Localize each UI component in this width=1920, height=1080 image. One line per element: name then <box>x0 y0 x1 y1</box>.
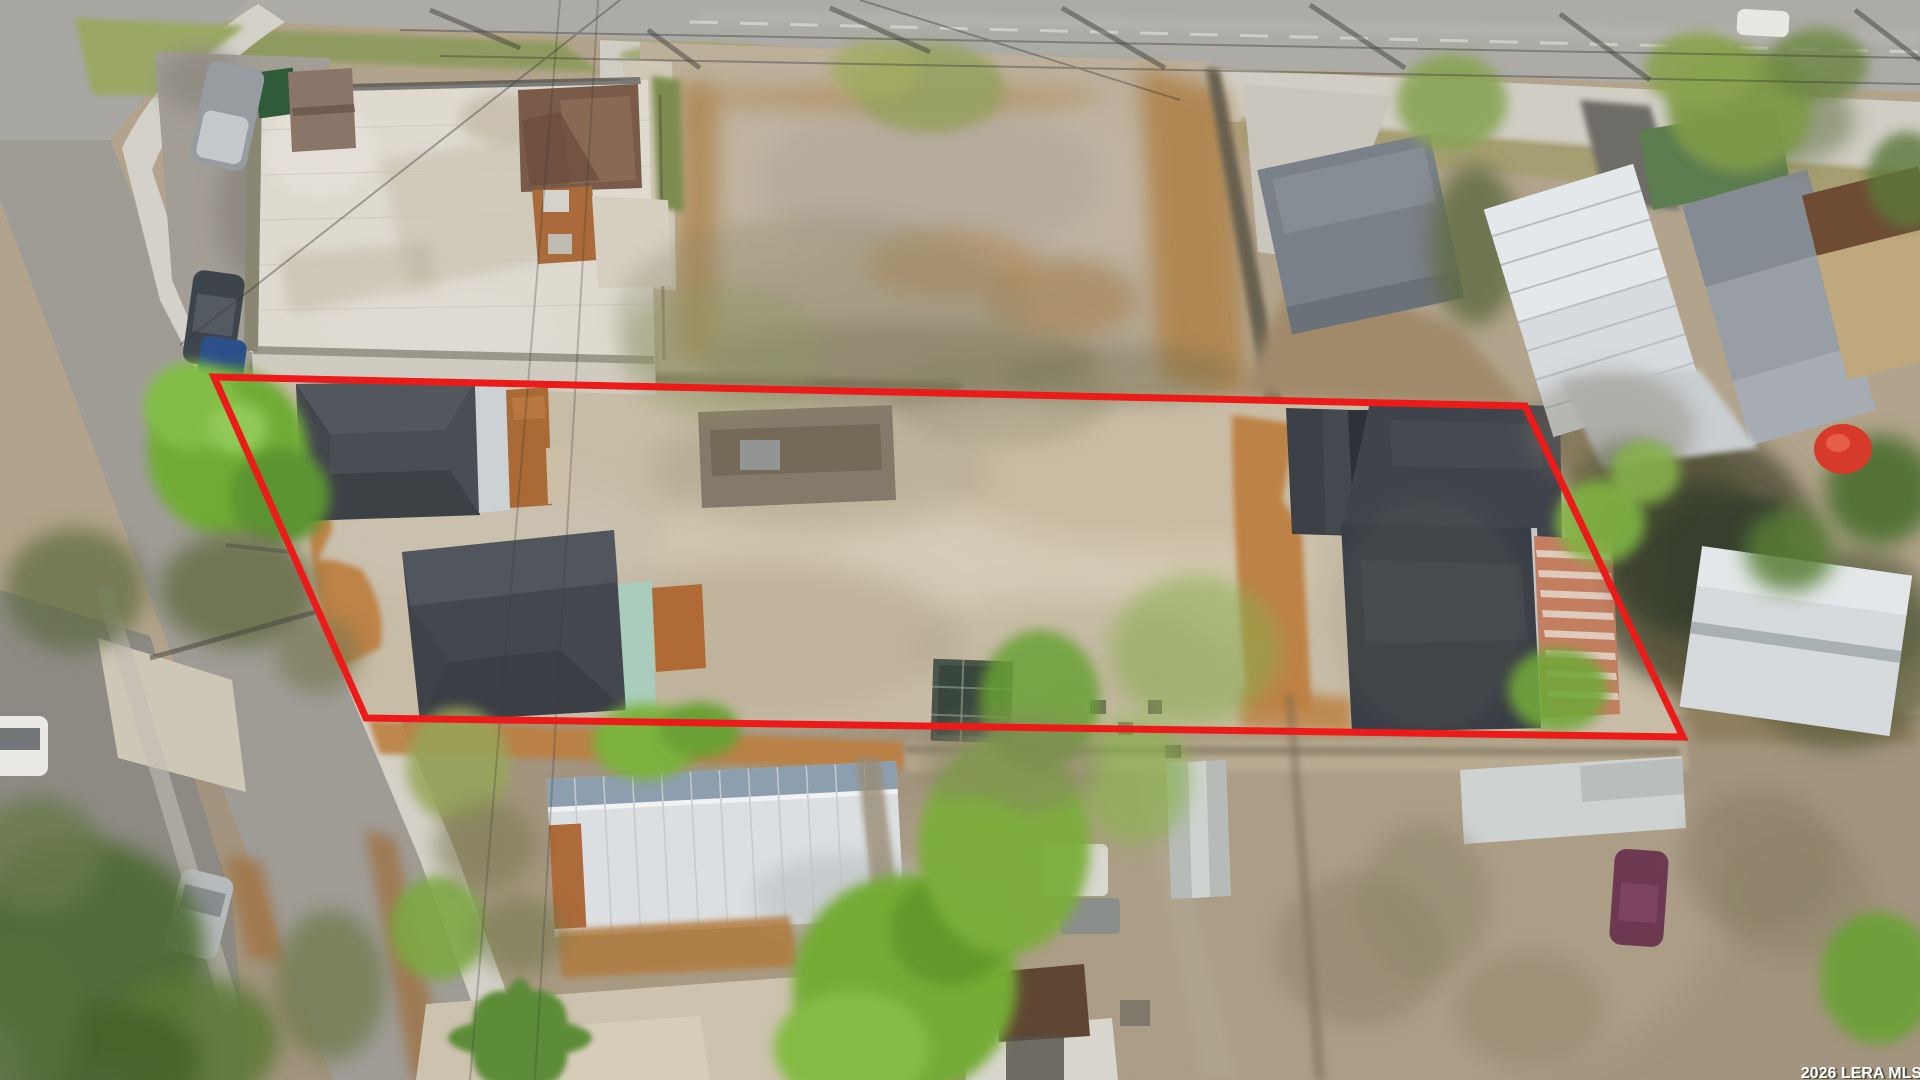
svg-text:2026 LERA MLS: 2026 LERA MLS <box>1801 1065 1920 1080</box>
